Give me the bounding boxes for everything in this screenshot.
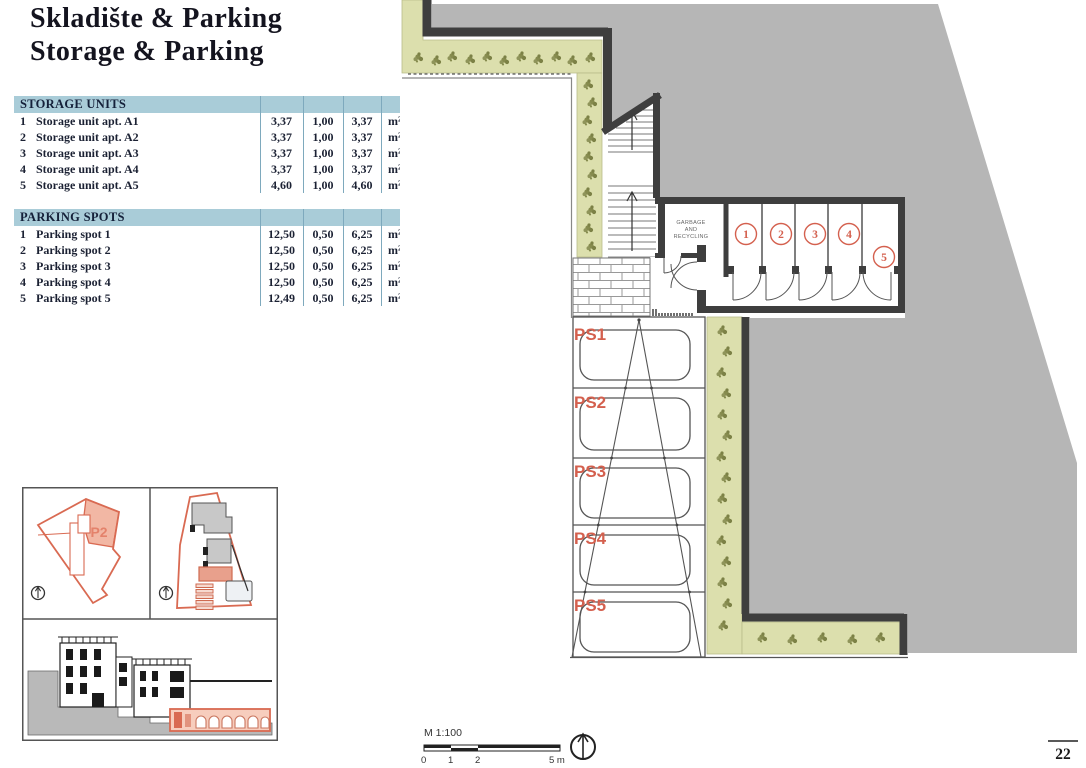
adjacent-building-outline	[400, 74, 573, 318]
scale-bar: M 1:100 0 1 2 5 m	[421, 727, 565, 766]
parcel-label: P2	[90, 524, 107, 540]
svg-text:RECYCLING: RECYCLING	[674, 234, 709, 240]
svg-text:22: 22	[1055, 746, 1071, 763]
scale-label: M 1:100	[424, 727, 462, 739]
unit-number-3: 3	[812, 229, 818, 241]
paved-area	[573, 258, 650, 316]
page-number: 22	[1048, 741, 1078, 763]
svg-text:0: 0	[421, 755, 426, 766]
ps5-label: PS5	[574, 596, 606, 615]
parking-area: PS1 PS2 PS3 PS4 PS5	[572, 317, 705, 657]
svg-text:1: 1	[448, 755, 453, 766]
inset-stairs	[196, 584, 213, 610]
inset-elevation	[28, 637, 272, 735]
storage-building: 1 2 3 4 5 GARBAGE AND RECYCLING	[655, 197, 905, 313]
inset-parcel-plan: P2	[32, 499, 121, 603]
ps2-label: PS2	[574, 393, 606, 412]
highlighted-storage-area	[199, 567, 232, 581]
svg-text:GARBAGE: GARBAGE	[676, 220, 705, 226]
scale-ticks: 0 1 2 5 m	[421, 755, 565, 766]
unit-number-2: 2	[778, 229, 784, 241]
unit-number-1: 1	[743, 229, 749, 241]
unit-number-5: 5	[881, 252, 887, 264]
unit-number-4: 4	[846, 229, 852, 241]
svg-text:AND: AND	[685, 227, 698, 233]
inset-site-plan	[160, 493, 253, 610]
ps3-label: PS3	[574, 462, 606, 481]
svg-text:5 m: 5 m	[549, 755, 565, 766]
elevation-highlight	[170, 709, 270, 731]
svg-text:2: 2	[475, 755, 480, 766]
ps1-label: PS1	[574, 325, 606, 344]
ps4-label: PS4	[574, 529, 607, 548]
key-plan-insets: P2	[22, 487, 278, 741]
north-arrow-icon	[571, 734, 595, 759]
elevation-building-1	[58, 637, 118, 707]
